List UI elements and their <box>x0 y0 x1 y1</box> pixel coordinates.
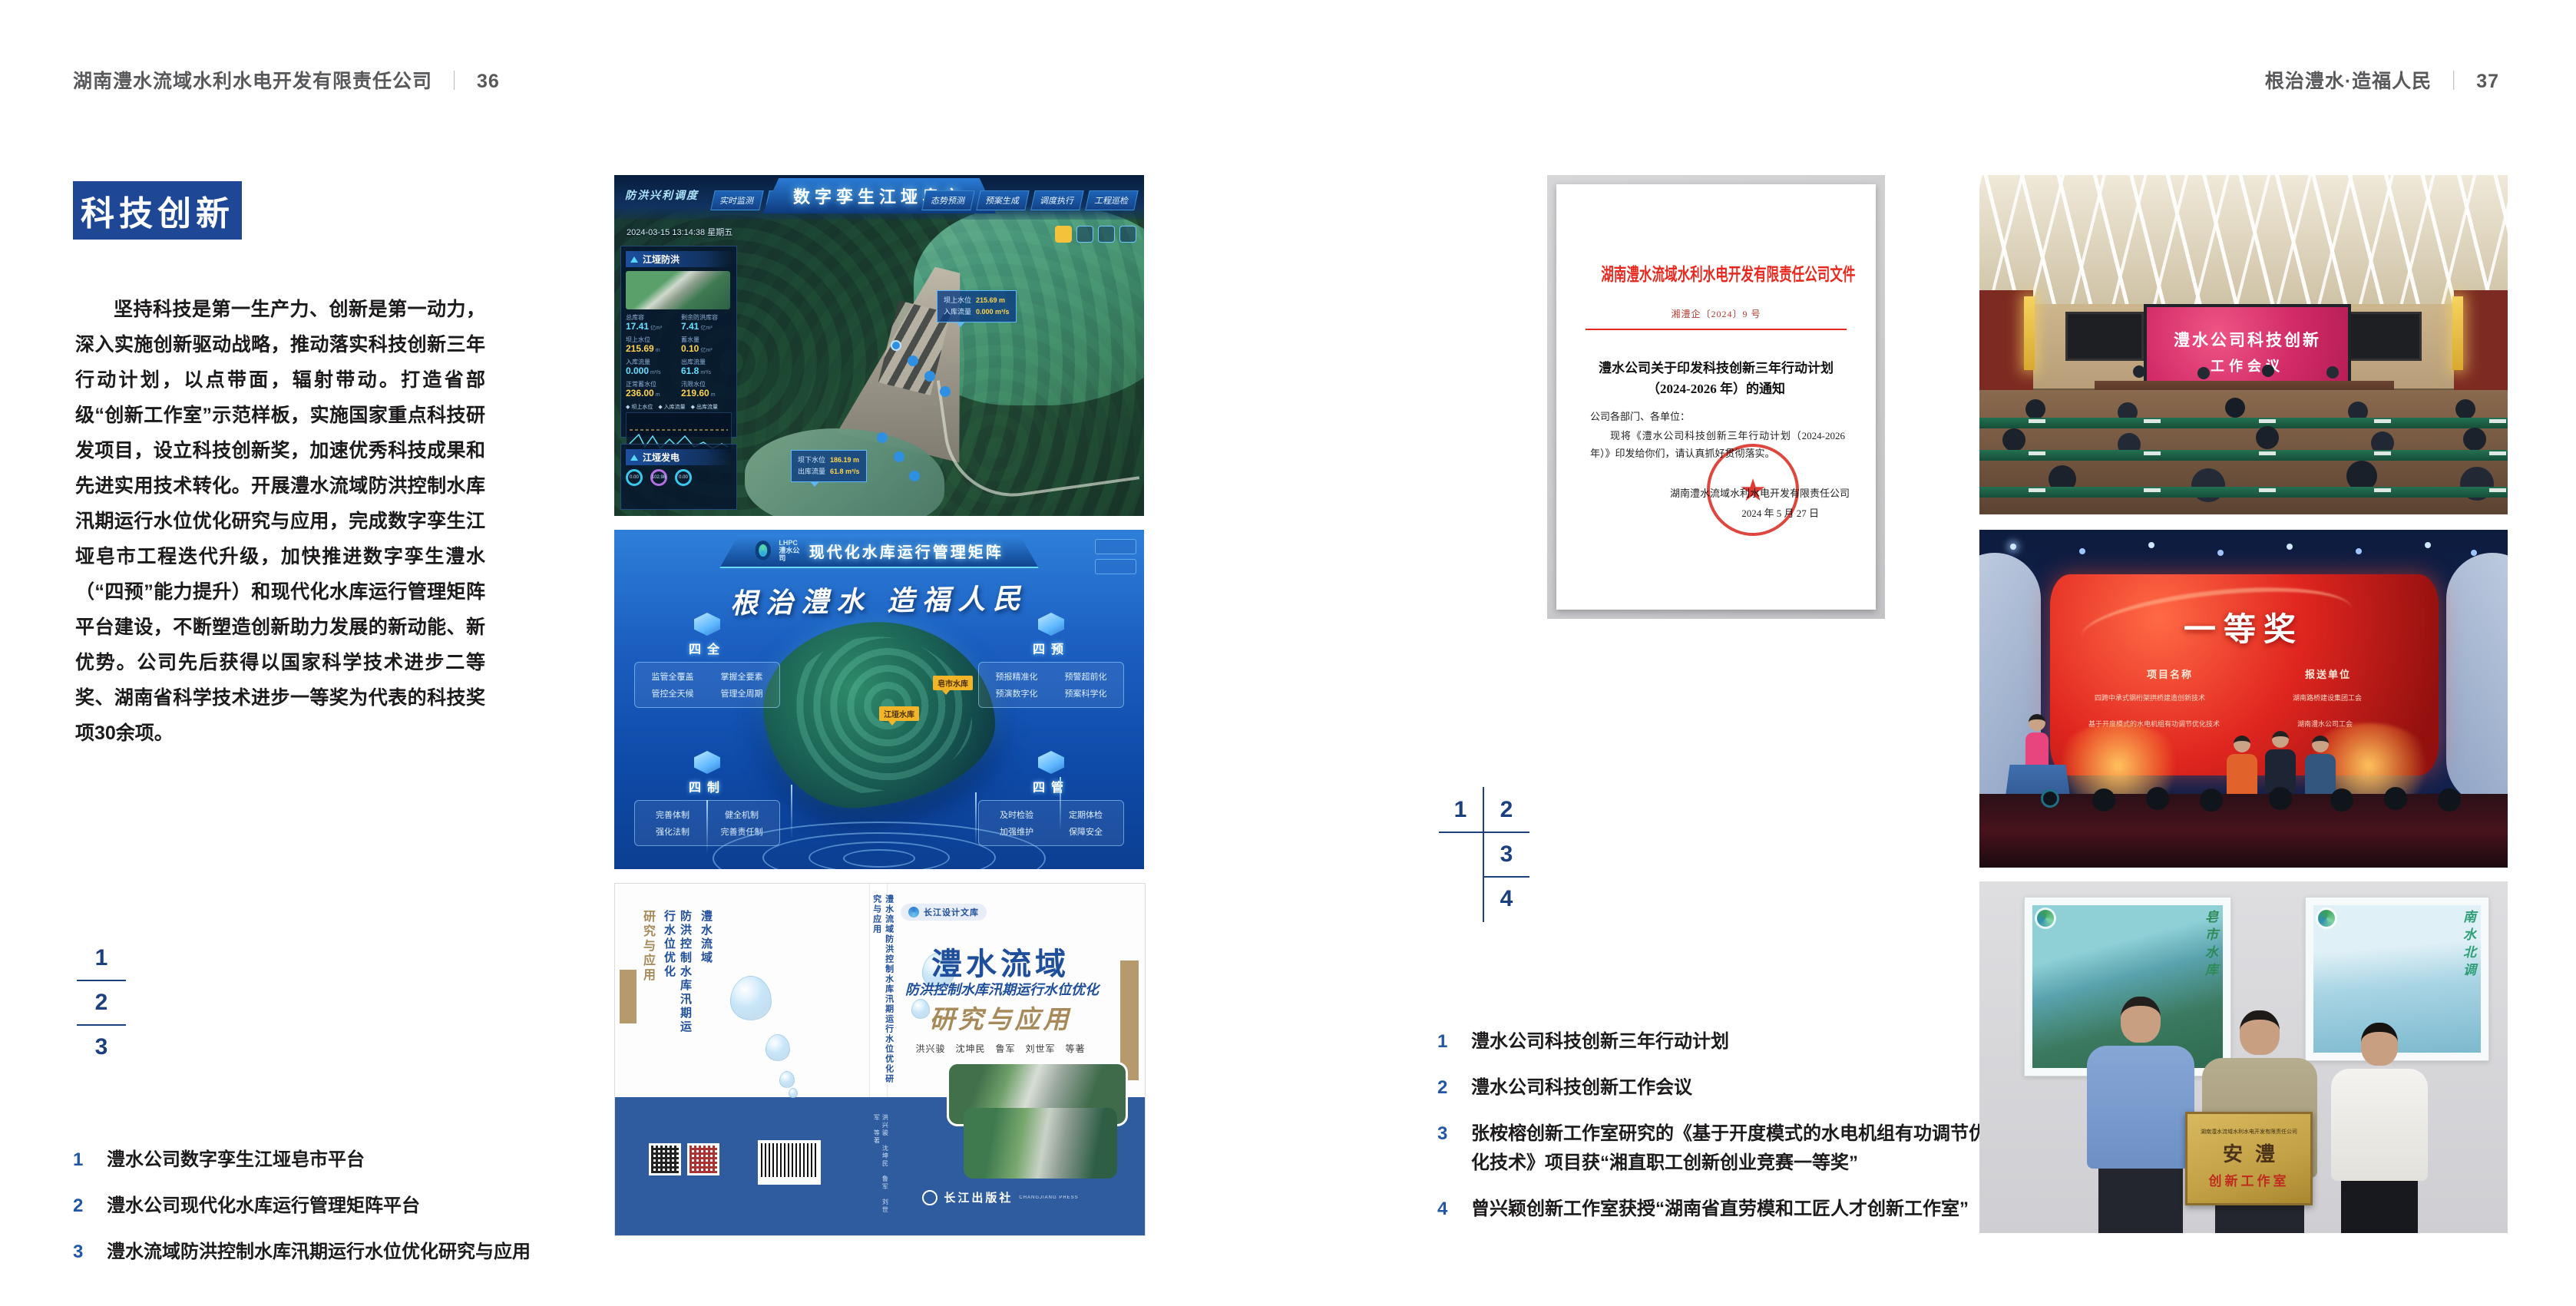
index-number: 2 <box>77 987 126 1018</box>
magazine-spread: 湖南澧水流域水利水电开发有限责任公司｜36 根治澧水·造福人民｜37 科技创新 … <box>0 0 2576 1306</box>
stat-cell: 正常蓄水位236.00m <box>626 380 676 400</box>
lhpc-logo-icon <box>755 541 771 560</box>
cube-icon <box>1038 751 1064 774</box>
chart-legend: ◆ 坝上水位 ◆ 入库流量 ◆ 出库流量 <box>626 403 732 411</box>
divider: ｜ <box>445 71 465 92</box>
lhpc-logo-icon <box>2037 910 2054 927</box>
index-number: 3 <box>77 1032 126 1063</box>
wall-lamp <box>2452 296 2463 370</box>
caption-number: 3 <box>1437 1119 1457 1178</box>
toolbar-icons <box>1055 226 1136 243</box>
woman-white-top <box>2322 1023 2437 1233</box>
caption-number: 1 <box>1437 1027 1457 1056</box>
stat-cell: 入库流量0.000m³/s <box>626 358 676 378</box>
caption-item: 4 曾兴颖创新工作室获授“湖南省直劳模和工匠人才创新工作室” <box>1437 1195 1998 1224</box>
water-droplet <box>789 1088 798 1098</box>
light-pillar <box>791 785 792 838</box>
ceiling <box>1979 175 2508 304</box>
series-logo-icon <box>908 907 919 918</box>
platform-header: LHPC澧水公司 现代化水库运行管理矩阵 <box>719 534 1039 568</box>
stat-cell: 坝上水位215.69m <box>626 336 676 355</box>
man-blue-polo <box>2079 997 2202 1233</box>
divider: ｜ <box>2444 71 2464 92</box>
water-droplet <box>766 1034 790 1061</box>
gate-marker-icons <box>891 340 901 351</box>
group-siguan: 四管 及时检验定期体检 加强维护保障安全 <box>978 751 1124 846</box>
lhpc-logo-icon <box>2318 910 2335 927</box>
group-items: 监管全覆盖掌握全要素 管控全天候管理全周期 <box>634 662 780 708</box>
caption-text: 澧水流域防洪控制水库汛期运行水位优化研究与应用 <box>107 1238 531 1267</box>
light-pillar <box>706 800 708 854</box>
document-body: 现将《澧水公司科技创新三年行动计划（2024-2026 年）》印发给你们，请认真… <box>1590 427 1845 462</box>
light-pillar <box>975 792 977 846</box>
dam-thumbnail <box>626 271 730 309</box>
group-siyu: 四预 预报精准化预警超前化 预演数字化预案科学化 <box>978 613 1124 708</box>
ripple-ring <box>843 849 915 868</box>
company-seal: ★ <box>1707 444 1799 536</box>
body-paragraph: 坚持科技是第一生产力、创新是第一动力，深入实施创新驱动战略，推动落实科技创新三年… <box>75 292 485 751</box>
wall-tv <box>2343 312 2422 361</box>
group-items: 预报精准化预警超前化 预演数字化预案科学化 <box>978 662 1124 708</box>
caption-number: 2 <box>1437 1073 1457 1103</box>
cube-icon <box>694 751 720 774</box>
close-button <box>1095 539 1136 554</box>
red-rule <box>1586 329 1847 330</box>
index-number: 1 <box>1449 797 1472 823</box>
cube-icon <box>694 613 720 636</box>
stats-grid: 总库容17.41亿m³ 剩余防洪库容7.41亿m³ 坝上水位215.69m 蓄水… <box>626 313 732 400</box>
document-red-header: 湖南澧水流域水利水电开发有限责任公司文件 <box>1601 260 1831 286</box>
page-number-right: 37 <box>2476 71 2499 92</box>
datetime-label: 2024-03-15 13:14:38 星期五 <box>627 226 732 238</box>
caption-text: 澧水公司数字孪生江垭皂市平台 <box>107 1146 365 1175</box>
back-accent-bar <box>620 970 637 1023</box>
document-number: 湘澧企〔2024〕9 号 <box>1556 307 1876 320</box>
figure-index-right: 1 2 3 4 <box>1439 787 1529 922</box>
salutation: 公司各部门、各单位： <box>1590 408 1690 423</box>
barcode <box>758 1140 821 1185</box>
gauge-value: 0.00 <box>675 469 692 486</box>
caption-text: 张桉榕创新工作室研究的《基于开度模式的水电机组有功调节优化技术》项目获“湘直职工… <box>1471 1119 1998 1178</box>
publisher-block: 长江出版社 CHANGJIANG PRESS <box>885 1189 1116 1205</box>
tab-dispatch-execute: 调度执行 <box>1030 190 1084 210</box>
tab-realtime-monitor: 实时监测 <box>710 190 764 210</box>
stat-cell: 蓄水量0.10亿m³ <box>681 336 732 355</box>
panel-icon <box>630 256 638 263</box>
star-icon: ★ <box>1739 472 1767 508</box>
caption-list-right: 1 澧水公司科技创新三年行动计划 2 澧水公司科技创新工作会议 3 张桉榕创新工… <box>1437 1027 1998 1224</box>
audience-heads <box>2002 428 2025 451</box>
company-name: 湖南澧水流域水利水电开发有限责任公司 <box>73 71 432 92</box>
innovation-workstation-plaque: 湖南澧水流域水利水电开发有限责任公司 安澧 创新工作室 <box>2185 1112 2313 1205</box>
water-droplet <box>730 976 772 1020</box>
index-divider <box>1439 832 1529 833</box>
figure-official-document: 湖南澧水流域水利水电开发有限责任公司文件 湘澧企〔2024〕9 号 澧水公司关于… <box>1547 175 1885 619</box>
figure-workstation-group-photo: 皂市水库 南水北调 湖南澧水流域水利水电开发有限责任公司 安澧 创新工作室 <box>1979 881 2508 1233</box>
stat-cell: 总库容17.41亿m³ <box>626 313 676 333</box>
section-title: 科技创新 <box>73 181 242 240</box>
caption-item: 3 张桉榕创新工作室研究的《基于开度模式的水电机组有功调节优化技术》项目获“湘直… <box>1437 1119 1998 1178</box>
water-droplet <box>779 1071 795 1088</box>
figure-award-ceremony-photo: 一等奖 项目名称 报送单位 四跨中承式钢桁架拱桥建造创新技术 湖南路桥建设集团工… <box>1979 530 2508 868</box>
desk-row <box>1979 487 2508 498</box>
stage-floor <box>1979 794 2508 868</box>
caption-text: 澧水公司现代化水库运行管理矩阵平台 <box>107 1192 420 1221</box>
front-accent-bar <box>1120 960 1139 1080</box>
upstream-tooltip: 坝上水位215.69 m 入库流量0.000 m³/s <box>937 290 1017 322</box>
desk-row <box>1979 450 2508 461</box>
tab-plan-generate: 预案生成 <box>976 190 1030 210</box>
figure-matrix-platform: LHPC澧水公司 现代化水库运行管理矩阵 根治澧水 造福人民 江垭水库 皂市水库… <box>614 530 1144 869</box>
caption-item: 1 澧水公司数字孪生江垭皂市平台 <box>73 1146 564 1175</box>
caption-number: 4 <box>1437 1195 1457 1224</box>
group-siquan: 四全 监管全覆盖掌握全要素 管控全天候管理全周期 <box>634 613 780 708</box>
user-icon <box>1055 226 1072 243</box>
document-page: 湖南澧水流域水利水电开发有限责任公司文件 湘澧企〔2024〕9 号 澧水公司关于… <box>1556 184 1876 610</box>
logo-text: LHPC澧水公司 <box>779 539 801 562</box>
panel-header: 江垭发电 <box>626 449 732 465</box>
index-divider <box>1483 787 1484 922</box>
cube-icon <box>1038 613 1064 636</box>
caption-number: 2 <box>73 1192 93 1221</box>
poster-calligraphy: 皂市水库 <box>2201 910 2220 980</box>
index-number: 3 <box>1495 841 1518 868</box>
column-project-name: 项目名称 <box>2147 666 2193 681</box>
publisher-logo-icon <box>922 1190 937 1205</box>
stat-cell: 剩余防洪库容7.41亿m³ <box>681 313 732 333</box>
stage-spotlights <box>2010 544 2016 550</box>
generator-gauges: 0.00 102.98 0.00 <box>626 469 732 486</box>
wall-tv <box>2065 312 2144 361</box>
desk-row <box>1979 418 2508 428</box>
panel-icon <box>630 455 638 461</box>
wall-lamp <box>2024 296 2035 370</box>
menu-button <box>1095 559 1136 574</box>
poster-calligraphy: 南水北调 <box>2459 910 2478 980</box>
cover-title-sub: 防洪控制水库汛期运行水位优化 <box>881 979 1123 999</box>
qr-code <box>687 1143 719 1175</box>
locate-icon <box>1098 226 1115 243</box>
module-label: 防洪兴利调度 <box>625 187 699 203</box>
power-panel: 江垭发电 0.00 102.98 0.00 <box>620 444 737 510</box>
light-pillar <box>1060 777 1061 831</box>
caption-number: 3 <box>73 1238 93 1267</box>
audience-heads <box>2025 399 2045 419</box>
stat-cell: 汛限水位219.60m <box>681 380 732 400</box>
tab-project-inspect: 工程巡检 <box>1085 190 1139 210</box>
map-marker-zaoshi: 皂市水库 <box>933 676 973 690</box>
caption-item: 3 澧水流域防洪控制水库汛期运行水位优化研究与应用 <box>73 1238 564 1267</box>
caption-list-left: 1 澧水公司数字孪生江垭皂市平台 2 澧水公司现代化水库运行管理矩阵平台 3 澧… <box>73 1146 564 1267</box>
rostrum-speakers <box>2133 365 2145 378</box>
stat-cell: 出库流量61.8m³/s <box>681 358 732 378</box>
column-submitting-unit: 报送单位 <box>2305 666 2351 681</box>
downstream-tooltip: 坝下水位186.19 m 出库流量61.8 m³/s <box>791 450 867 482</box>
caption-item: 1 澧水公司科技创新三年行动计划 <box>1437 1027 1998 1056</box>
document-title: 澧水公司关于印发科技创新三年行动计划 （2024-2026 年）的通知 <box>1556 358 1876 399</box>
flood-panel: 江垭防洪 总库容17.41亿m³ 剩余防洪库容7.41亿m³ 坝上水位215.6… <box>620 246 737 438</box>
slogan: 根治澧水·造福人民 <box>2265 71 2432 92</box>
caption-text: 澧水公司科技创新三年行动计划 <box>1471 1027 1729 1056</box>
index-divider <box>77 980 126 981</box>
tab-situation-forecast: 态势预测 <box>921 190 975 210</box>
settings-icon <box>1119 226 1136 243</box>
index-number: 2 <box>1495 797 1518 823</box>
map-marker-jiangya: 江垭水库 <box>879 706 919 721</box>
panel-header: 江垭防洪 <box>626 251 732 267</box>
layers-icon <box>1076 226 1093 243</box>
platform-title: 现代化水库运行管理矩阵 <box>809 540 1004 562</box>
figure-book-cover: 澧水流域 防洪控制水库汛期运行水位优化 研究与应用 澧水流域防洪控制水库汛期运行… <box>614 883 1146 1236</box>
panel-title: 江垭防洪 <box>643 253 680 266</box>
tab-group-right: 态势预测 预案生成 调度执行 工程巡检 <box>924 190 1136 210</box>
back-cover-title: 澧水流域 防洪控制水库汛期运行水位优化 研究与应用 <box>638 910 714 1040</box>
cover-authors: 洪兴骏 沈坤民 鲁军 刘世军 等著 <box>885 1042 1116 1055</box>
caption-item: 2 澧水公司科技创新工作会议 <box>1437 1073 1998 1103</box>
cover-title-main: 澧水流域 <box>885 939 1116 984</box>
page-number-left: 36 <box>477 71 500 92</box>
index-number: 4 <box>1495 886 1518 912</box>
running-head-left: 湖南澧水流域水利水电开发有限责任公司｜36 <box>73 66 500 94</box>
award-row-project: 四跨中承式钢桁架拱桥建造创新技术 <box>2095 693 2205 703</box>
caption-item: 2 澧水公司现代化水库运行管理矩阵平台 <box>73 1192 564 1221</box>
running-head-right: 根治澧水·造福人民｜37 <box>2265 66 2499 94</box>
award-row-org: 湖南路桥建设集团工会 <box>2293 693 2362 703</box>
index-divider <box>77 1024 126 1026</box>
figure-digital-twin-platform: 防洪兴利调度 实时监测 洪水预报 防洪预警 数字孪生江垭皂市 态势预测 预案生成… <box>614 175 1144 516</box>
caption-text: 曾兴颖创新工作室获授“湖南省直劳模和工匠人才创新工作室” <box>1471 1195 1969 1224</box>
gauge-value: 0.00 <box>626 469 643 486</box>
stage-side-panel <box>2446 553 2508 806</box>
figure-index-left: 1 2 3 <box>77 943 126 1063</box>
gauge-value: 102.98 <box>650 469 667 486</box>
floor-light-fixtures <box>2041 789 2059 808</box>
series-badge: 长江设计文库 <box>901 904 987 921</box>
caption-text: 澧水公司科技创新工作会议 <box>1471 1073 1692 1103</box>
award-title: 一等奖 <box>1979 603 2508 650</box>
cover-title-tail: 研究与应用 <box>885 999 1116 1036</box>
figure-meeting-photo: 澧水公司科技创新 工作会议 <box>1979 175 2508 514</box>
qr-code <box>649 1143 681 1175</box>
panel-title: 江垭发电 <box>643 451 680 464</box>
index-number: 1 <box>77 943 126 974</box>
caption-number: 1 <box>73 1146 93 1175</box>
index-divider <box>1483 876 1529 878</box>
dam-photo-bottom <box>964 1108 1117 1179</box>
